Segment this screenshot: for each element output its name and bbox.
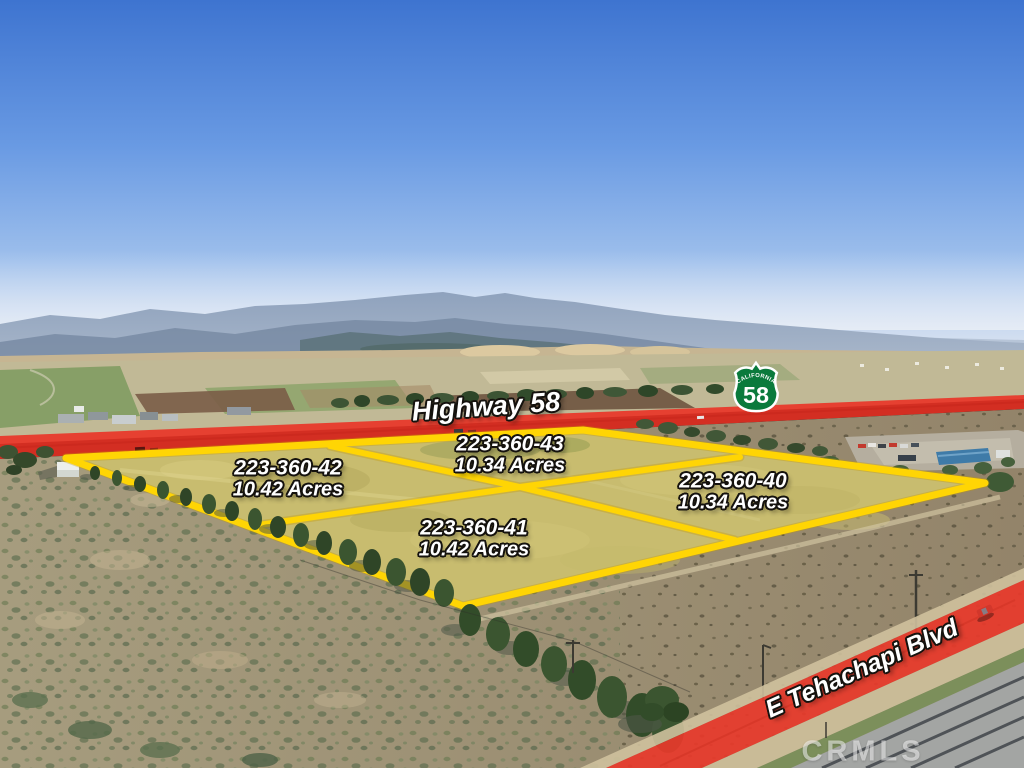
parcel-label-223-360-43: 223-360-43 10.34 Acres bbox=[455, 433, 565, 476]
ca-58-shield: CALIFORNIA 58 bbox=[731, 360, 781, 414]
parcel-label-223-360-42: 223-360-42 10.42 Acres bbox=[233, 457, 343, 500]
parcel-label-223-360-40: 223-360-40 10.34 Acres bbox=[678, 470, 788, 513]
parcel-acreage: 10.42 Acres bbox=[419, 540, 529, 561]
parcel-acreage: 10.34 Acres bbox=[455, 456, 565, 477]
crmls-watermark: CRMLS bbox=[801, 736, 924, 768]
parcel-apn: 223-360-40 bbox=[678, 470, 788, 492]
shield-route-number: 58 bbox=[743, 382, 769, 408]
parcel-apn: 223-360-43 bbox=[455, 433, 565, 455]
parcel-acreage: 10.34 Acres bbox=[678, 493, 788, 514]
aerial-photo: Highway 58 CALIFORNIA 58 223-360-42 10.4… bbox=[0, 0, 1024, 768]
parcel-apn: 223-360-41 bbox=[419, 517, 529, 539]
parcel-label-223-360-41: 223-360-41 10.42 Acres bbox=[419, 517, 529, 560]
parcel-apn: 223-360-42 bbox=[233, 457, 343, 479]
parcel-acreage: 10.42 Acres bbox=[233, 480, 343, 501]
